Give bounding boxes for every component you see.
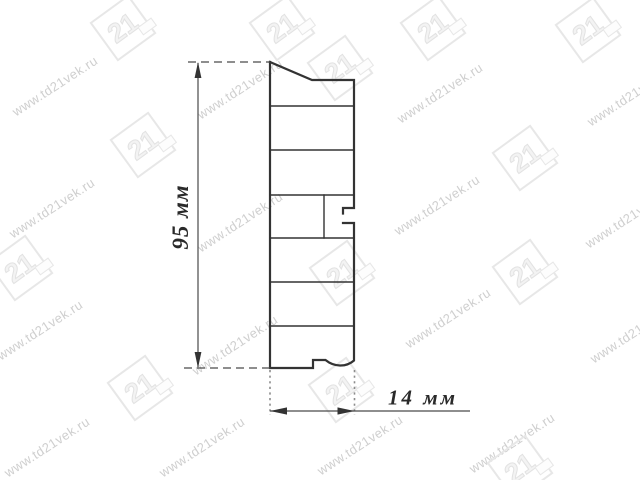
- profile-inner-lines: [270, 106, 354, 326]
- profile-outline-bottom: [270, 62, 354, 368]
- arrowhead-left: [270, 407, 287, 414]
- profile-cross-section-drawing: [0, 0, 640, 480]
- technical-drawing-canvas: www.td21vek.ruwww.td21vek.ruwww.td21vek.…: [0, 0, 640, 480]
- height-dimension-label: 95 мм: [168, 184, 194, 249]
- arrowhead-right: [338, 407, 355, 414]
- height-dimension: [184, 62, 270, 368]
- arrowhead-up: [195, 62, 202, 78]
- width-dimension-label: 14 мм: [388, 386, 458, 411]
- profile-outline-top: [270, 62, 354, 214]
- arrowhead-down: [195, 352, 202, 368]
- profile-outline: [270, 62, 354, 368]
